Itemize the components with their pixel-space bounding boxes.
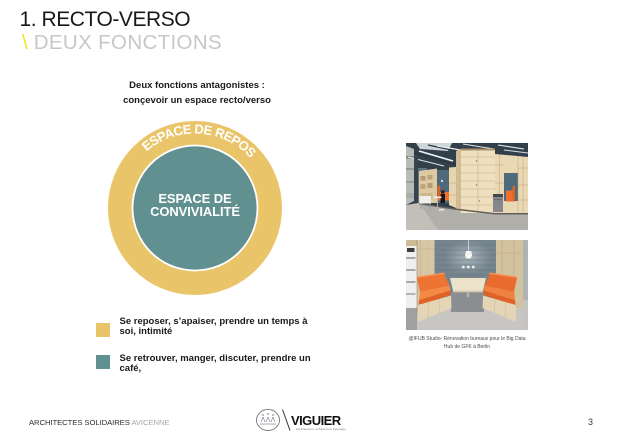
svg-text:CONVIVIALITÉ: CONVIVIALITÉ [150, 204, 240, 219]
